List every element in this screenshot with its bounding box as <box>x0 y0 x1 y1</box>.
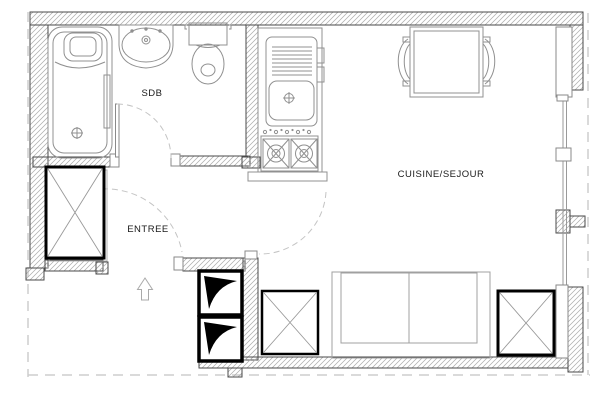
stove-knob <box>274 130 277 133</box>
stove-knob-dot <box>281 129 282 130</box>
toilet-tank-ticks <box>185 25 231 29</box>
sofa-outline <box>332 272 490 358</box>
wall-entry-closet-top <box>183 258 245 271</box>
stove-knob <box>263 130 266 133</box>
duct-box-2 <box>199 317 242 361</box>
wardrobe-x-left <box>46 167 107 261</box>
window-top-sill <box>557 95 568 101</box>
bathtub-seat-inner <box>70 37 96 56</box>
washbasin-icon <box>119 25 173 68</box>
counter-front-edge <box>248 172 327 181</box>
label-entrance: ENTREE <box>127 224 169 235</box>
wall-divider-foot <box>242 157 260 168</box>
label-kitchen-living: CUISINE/SEJOUR <box>398 169 485 180</box>
entrance-arrow-icon <box>138 278 153 300</box>
bath-door-jamb-right <box>171 154 180 166</box>
chair-back-outer <box>398 39 408 84</box>
duct-box-1 <box>199 271 242 315</box>
floor-plan-drawing: SDB ENTREE CUISINE/SEJOUR <box>0 0 600 400</box>
window-top-column <box>556 27 572 97</box>
washbasin-drain-inner <box>145 39 148 42</box>
wall-top <box>30 12 583 25</box>
wall-bath-bottom-right <box>180 156 250 166</box>
window-wall <box>563 98 567 285</box>
burner-left-x <box>263 139 289 168</box>
closet-jamb-top <box>245 251 257 259</box>
bathtub-icon <box>48 27 112 158</box>
toilet-icon <box>185 23 231 84</box>
toilet-tank <box>189 23 227 45</box>
wall-bottom-notch <box>228 368 242 377</box>
bathtub-seat-edge <box>55 62 105 68</box>
window-mullion-block <box>556 148 571 161</box>
stove-knob <box>307 130 310 133</box>
faucet-upper <box>317 48 324 63</box>
stove-icon <box>261 129 318 171</box>
toilet-bowl-inner <box>201 64 215 76</box>
washbasin-drain <box>142 36 150 44</box>
sink-basin <box>269 81 314 120</box>
dining-table-icon <box>398 27 495 97</box>
window-bottom-jamb <box>556 285 568 358</box>
sink-drain-cross <box>283 92 295 104</box>
stove-knob-dot <box>303 129 304 130</box>
sofa-icon <box>332 272 490 358</box>
stove-knob-dot <box>292 129 293 130</box>
wall-bottom <box>199 357 568 368</box>
wall-left-foot <box>26 268 44 280</box>
kitchen-sink-icon <box>266 37 324 126</box>
table-top-outer <box>410 27 483 97</box>
washbasin-tap-dot <box>145 28 147 30</box>
floor-plan: SDB ENTREE CUISINE/SEJOUR <box>0 0 600 400</box>
wardrobe-x-right <box>498 291 554 355</box>
wardrobe-x-center <box>262 291 318 354</box>
wall-under-wardrobe <box>45 260 103 271</box>
chair-back-outer <box>485 39 495 84</box>
wall-bath-kitchen-divider <box>246 25 258 157</box>
wall-right-bottom <box>568 287 583 372</box>
washbasin-tap-dot <box>159 30 161 32</box>
door-jambs <box>110 154 257 270</box>
bathroom-door-swing-arc <box>117 104 171 158</box>
window-pier-arm <box>570 216 585 227</box>
kitchen-swing-arc <box>259 192 326 254</box>
sink-drainboard-lines <box>272 47 312 75</box>
washbasin-tap-dot <box>131 30 133 32</box>
stove-knob <box>285 130 288 133</box>
bathtub-inner <box>53 32 107 153</box>
burner-right-x <box>291 139 317 168</box>
washbasin-bowl <box>122 28 170 62</box>
wall-entry-closet-right <box>243 258 258 360</box>
wall-under-wardrobe-foot <box>96 262 108 274</box>
bathroom-door-leaf <box>116 104 120 157</box>
faucet-lower <box>317 67 324 82</box>
stove-knob-dot <box>270 129 271 130</box>
bathtub-drain-cross <box>71 127 83 139</box>
closet-jamb-left <box>174 257 183 270</box>
label-bathroom: SDB <box>141 88 162 99</box>
stove-knob <box>296 130 299 133</box>
